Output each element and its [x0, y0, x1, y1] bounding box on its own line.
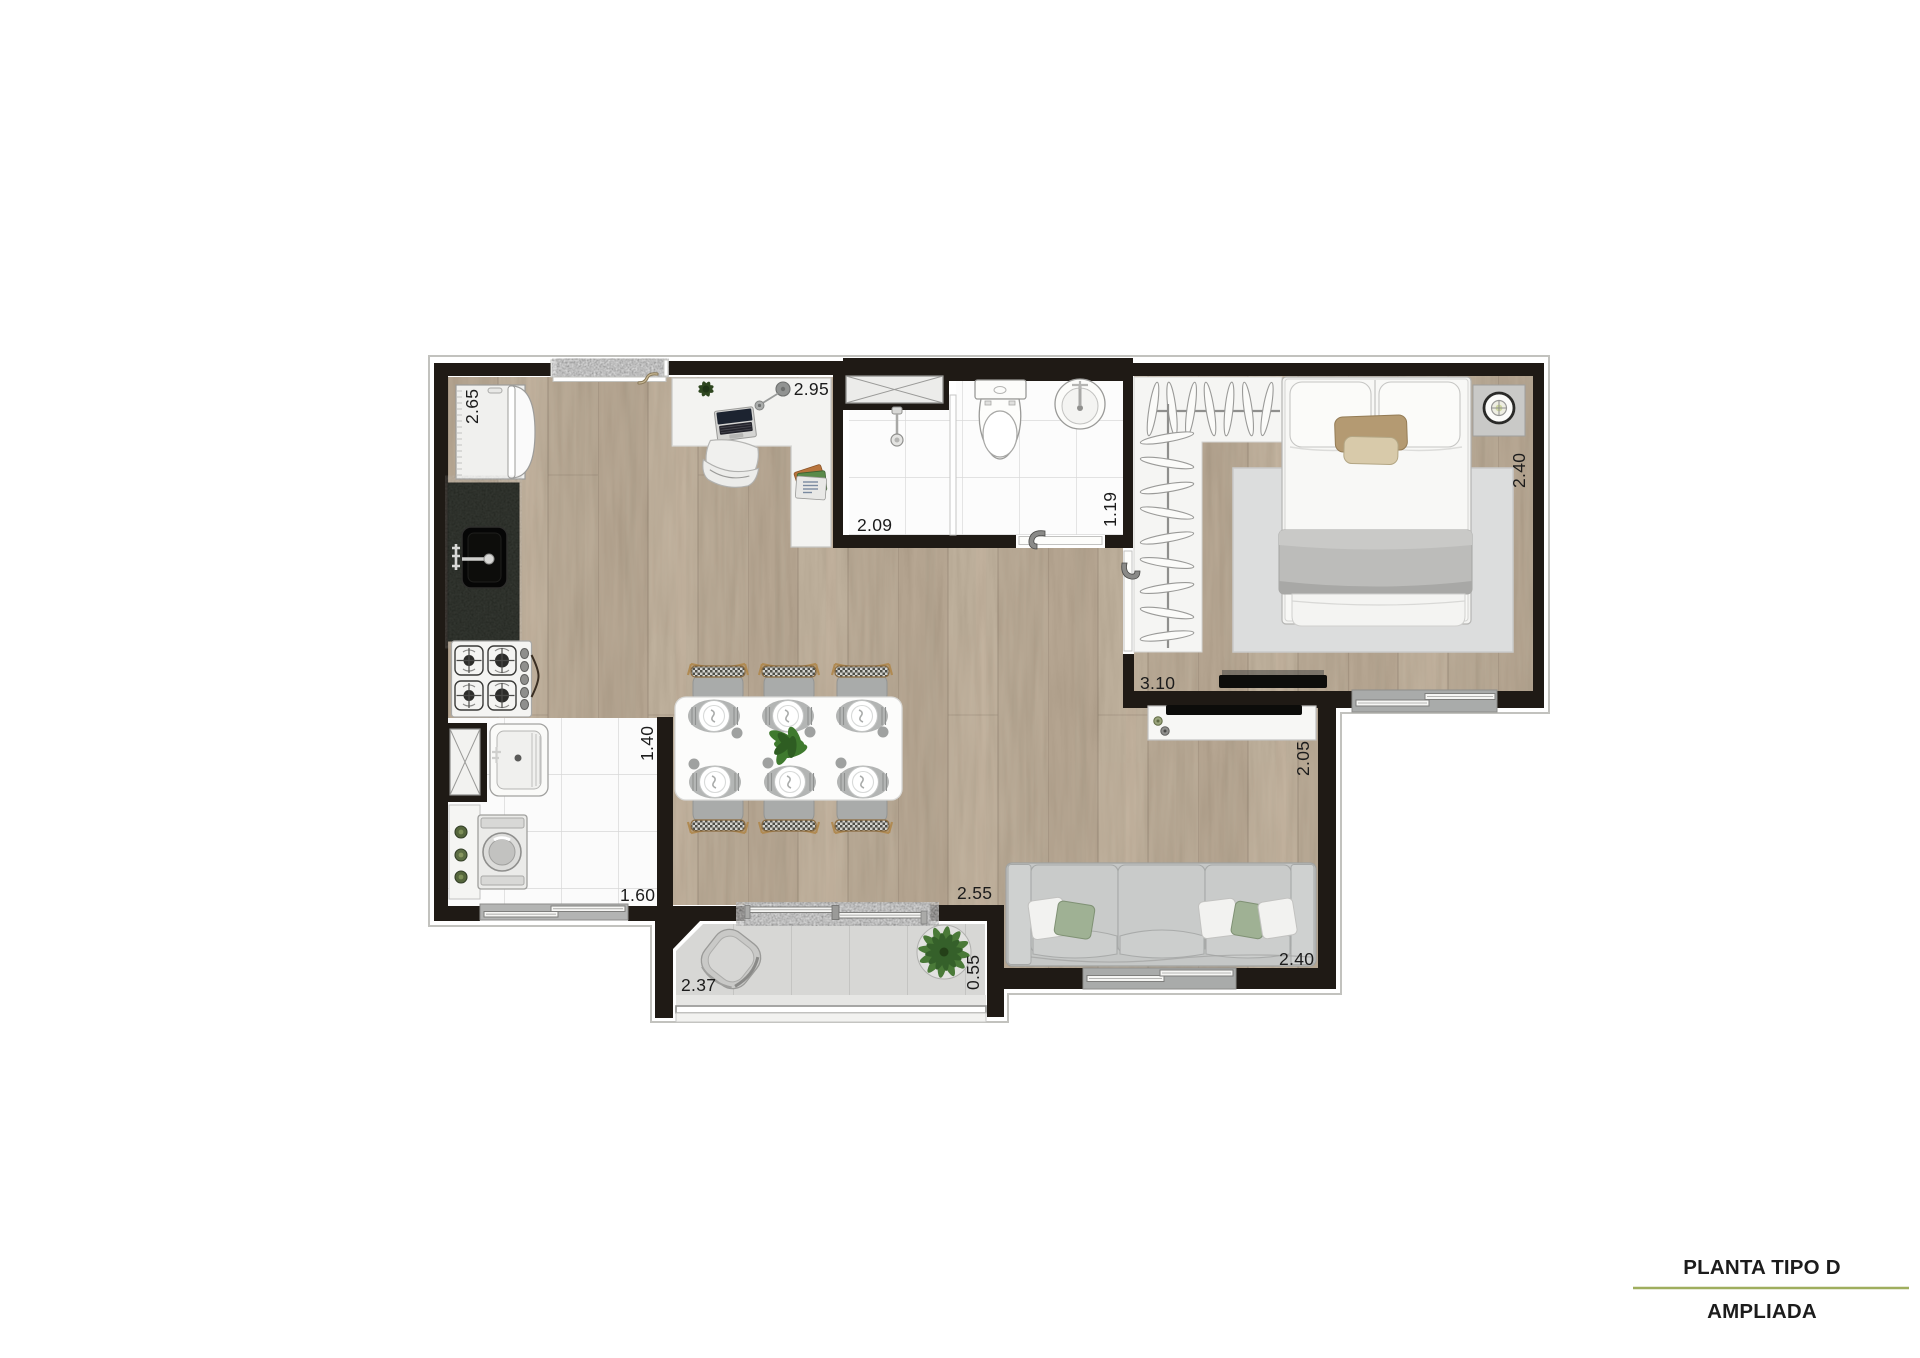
svg-text:0.55: 0.55	[963, 955, 983, 990]
svg-text:3.10: 3.10	[1140, 673, 1175, 693]
svg-text:1.40: 1.40	[637, 726, 657, 761]
svg-text:PLANTA TIPO D: PLANTA TIPO D	[1683, 1256, 1840, 1279]
svg-text:2.37: 2.37	[681, 975, 716, 995]
svg-text:2.09: 2.09	[857, 515, 892, 535]
svg-text:2.95: 2.95	[794, 379, 829, 399]
svg-text:2.40: 2.40	[1509, 453, 1529, 488]
svg-text:2.55: 2.55	[957, 883, 992, 903]
svg-text:2.65: 2.65	[462, 389, 482, 424]
svg-text:2.40: 2.40	[1279, 949, 1314, 969]
svg-text:AMPLIADA: AMPLIADA	[1707, 1300, 1817, 1323]
svg-text:2.05: 2.05	[1293, 741, 1313, 776]
svg-text:1.60: 1.60	[620, 885, 655, 905]
svg-text:1.19: 1.19	[1100, 492, 1120, 527]
